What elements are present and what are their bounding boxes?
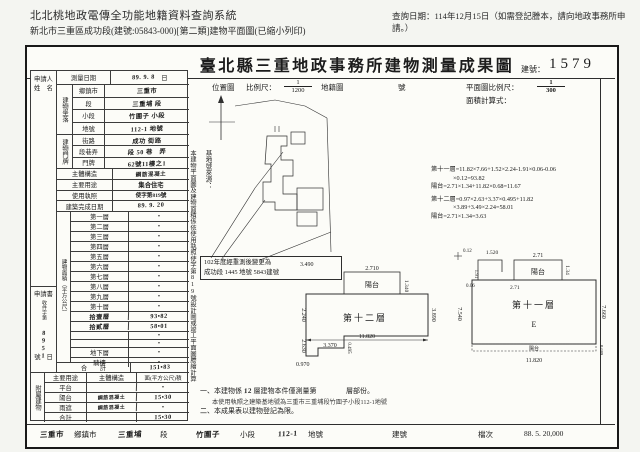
formula-line: 陽台=2.71×1.34+11.82×0.68=11.67 [431, 183, 623, 192]
dim-1520: 1.520 [486, 250, 499, 256]
dim-006: 0.06 [466, 284, 475, 289]
formula-line: ×0.12=93.82 [431, 175, 623, 184]
query-subtitle: 新北市三重區成功段(建號:05843-000)[第二類]建物平面圖(已縮小列印) [30, 24, 305, 37]
applicant-label-2: 姓 名 [34, 83, 53, 92]
floor-row: 第八層• [71, 282, 189, 292]
note-1-text: 層建物本件僅測量第 [254, 387, 317, 395]
strip-subsection-value: 竹圍子 [196, 429, 220, 441]
floor-row: 拾壹層93•82 [71, 312, 189, 322]
balcony-label: 陽台 [365, 280, 379, 289]
door-row: 門牌 62號11樓之1 [73, 158, 189, 168]
strip-building-label: 建號 [392, 429, 407, 440]
form-bottom-line [27, 424, 615, 425]
annex-area: • [137, 403, 189, 412]
dim-7540: 7.540 [456, 307, 462, 321]
dim-11820b: 11.820 [526, 358, 542, 364]
dim-2710: 2.710 [365, 266, 379, 272]
structure-label: 主體構造 [57, 169, 113, 179]
survey-date-handwritten: 89. 9. 8 [132, 74, 155, 82]
strip-section-label: 段 [160, 429, 168, 440]
area-formula-label: 面積計算式： [466, 95, 511, 106]
strip-subsection-label: 小段 [240, 429, 255, 440]
floor-label: 第十層 [71, 302, 129, 311]
annex-structure [87, 382, 137, 393]
floor-row: 第十層• [71, 302, 189, 312]
cadastral-no-label: 號 [398, 82, 406, 93]
strip-print-batch: 88. 5. 20,000 [524, 429, 563, 438]
location-row-value: 竹圍子 小段 [105, 109, 189, 123]
dim-3370: 3.370 [323, 343, 337, 349]
query-date: 查詢日期：114年12月15日（如需登記謄本，請向地政事務所申請。） [392, 10, 640, 34]
annex-structure [87, 413, 137, 422]
scale-numerator: 1 [284, 79, 312, 87]
query-system-page: 北北桃地政電傳全功能地籍資料查詢系統 查詢日期：114年12月15日（如需登記謄… [0, 0, 640, 452]
note-1-text: 一、本建物係 [200, 387, 242, 395]
note-1: 一、本建物係 12 層建物本件僅測量第 層部份。 [200, 386, 374, 396]
floor-value: • [129, 242, 189, 251]
survey-date-suffix: 日 [161, 73, 167, 82]
floor-row: • [71, 340, 189, 348]
floor-row: 第六層• [71, 262, 189, 272]
annex-area: 15•30 [137, 392, 189, 403]
receipt-no-label: 收件字第 [40, 300, 47, 330]
floor-value: • [129, 332, 189, 339]
formula-line: ×3.89+3.49×2.24=58.01 [431, 204, 623, 213]
document-title: 臺北縣三重地政事務所建物測量成果圖 [192, 52, 522, 76]
door-row-label: 段巷弄 [73, 146, 105, 156]
annex-block: 附屬建物 主要用途 主體構造 面(平方公尺)積 平台 • 陽台 鋼筋混凝土 15… [31, 373, 189, 422]
annex-label: 附屬建物 [31, 373, 45, 422]
plan-scale-numerator: 1 [537, 79, 565, 87]
floor-total-label: 合 計 [57, 363, 131, 372]
floor-label [71, 340, 129, 347]
main-use-row: 主要用途 集合住宅 [57, 180, 189, 191]
dim-3490: 3.490 [300, 262, 314, 268]
dim-2630: 2.630 [300, 339, 306, 353]
floor-label: 第五層 [71, 252, 129, 261]
dim-0689: 0.689 [599, 345, 604, 356]
location-row-label: 地號 [73, 123, 105, 135]
annex-structure: 鋼筋混凝土 [87, 392, 137, 403]
plan-scale-label: 平面圖比例尺： [466, 82, 519, 93]
floor-row: 第七層• [71, 272, 189, 282]
plan-scale-fraction: 1 300 [537, 79, 565, 94]
dim-271b: 2.71 [510, 285, 520, 291]
annex-row: 雨遮 鋼筋混凝土 • [45, 403, 189, 413]
area-formulas: 第十一層=11.82×7.66+1.52×2.24-1.91×0.06-0.06… [431, 166, 623, 221]
application-receipt-box: 申請書 收件字第 8951 號 日 [31, 287, 57, 373]
floor-label: 第一層 [71, 212, 129, 221]
floor-row: • [71, 332, 189, 340]
dim-11820: 11.820 [359, 334, 375, 340]
floor-row: 拾貳層58•01 [71, 322, 189, 332]
floor-total-value: 151•83 [131, 362, 189, 373]
license-stamp-note: 本使用執照之建築基地號為三重市三重埔段竹圍子小段112-1地號 [212, 397, 387, 406]
floor-label: 第六層 [71, 262, 129, 271]
balcony-strip-label: 陽台 [529, 345, 539, 352]
building-location-block: 建物坐落 鄉鎮市 三重市 段 三重埔 段 小段 竹圍子 小段 地號 112-1 … [57, 85, 189, 135]
floor-plan-11f: 0.12 7.540 1.520 1.91 0.06 2.71 1.34 陽台 … [450, 242, 618, 376]
annex-header-area: 面(平方公尺)積 [137, 373, 189, 382]
floor-value: • [129, 272, 189, 281]
license-value: 使字第819號 [113, 191, 189, 201]
floor-value: • [129, 212, 189, 221]
note-1-handwritten-floors: 12 [244, 387, 252, 395]
applicant-label-1: 申請人 [34, 74, 53, 83]
survey-date-row: 測量日期 89. 9. 8 日 [57, 71, 189, 85]
floor-row: 地下層• [71, 348, 189, 358]
annex-use: 陽台 [45, 393, 87, 402]
dim-7660: 7.660 [600, 305, 606, 319]
floor-label: 第九層 [71, 292, 129, 301]
floor-value: • [129, 282, 189, 291]
survey-date-value: 89. 9. 8 日 [111, 71, 189, 84]
strip-file-label: 檔次 [478, 429, 493, 440]
main-use-label: 主要用途 [57, 180, 113, 190]
receipt-no-handwritten: 8951 [40, 330, 48, 352]
license-label: 使用執照 [57, 191, 113, 201]
floor-label: 第四層 [71, 242, 129, 251]
location-row: 小段 竹圍子 小段 [73, 110, 189, 123]
strip-section-value: 三重埔 [118, 429, 142, 441]
floor-row: 第二層• [71, 222, 189, 232]
annex-row: 陽台 鋼筋混凝土 15•30 [45, 393, 189, 403]
floor-area-block: 建物面積（平方公尺） 第一層• 第二層• 第三層• 第四層• 第五層• 第六層•… [57, 212, 189, 363]
dim-0495: 0.495 [346, 342, 351, 354]
door-row-label: 門牌 [73, 158, 105, 168]
strip-township-value: 三重市 [40, 429, 64, 441]
location-row: 地號 112-1 地號 [73, 123, 189, 135]
floor-label: 地下層 [71, 348, 129, 357]
floor-row: 第一層• [71, 212, 189, 222]
floor-label: 第三層 [71, 232, 129, 241]
dim-191: 1.91 [473, 270, 478, 279]
plan-scale-denominator: 300 [537, 87, 565, 94]
application-label: 申請書 [34, 289, 53, 298]
strip-township-label: 鄉鎮市 [74, 429, 97, 440]
annex-area: 15•30 [137, 412, 189, 423]
survey-date-label: 測量日期 [57, 71, 111, 84]
building-number: 1579 [549, 56, 595, 73]
floor-label: 拾貳層 [71, 321, 129, 332]
completion-date-label: 建築完成日期 [57, 201, 113, 211]
formula-line: 第十一層=11.82×7.66+1.52×2.24-1.91×0.06-0.06 [431, 166, 623, 175]
dim-2240: 2.240 [300, 308, 306, 322]
receipt-day-suffix: 日 [47, 352, 53, 361]
location-row-label: 鄉鎮市 [73, 85, 105, 97]
completion-date-value: 89. 9. 20 [113, 200, 189, 212]
strip-parcel-label: 地號 [308, 429, 323, 440]
floor-value: • [129, 262, 189, 271]
completion-date-row: 建築完成日期 89. 9. 20 [57, 201, 189, 211]
floor-label: 第七層 [71, 272, 129, 281]
floor-value: • [129, 348, 189, 357]
applicant-name-cell: 申請人 姓 名 [31, 71, 57, 287]
floor-area-label: 建物面積（平方公尺） [57, 212, 71, 362]
dim-1340: 1.340 [403, 280, 409, 293]
annex-use: 合計 [45, 413, 87, 422]
floor-label [71, 332, 129, 339]
dim-0970: 0.970 [296, 362, 310, 368]
floor-row: 第五層• [71, 252, 189, 262]
dim-134: 1.34 [564, 265, 570, 275]
location-sketch-map [205, 92, 333, 260]
floor-label: 第二層 [71, 222, 129, 231]
floor-value: • [129, 222, 189, 231]
location-row-label: 小段 [73, 110, 105, 122]
structure-value: 鋼筋混凝土 [113, 168, 189, 180]
location-row-label: 段 [73, 98, 105, 110]
floor-value: • [129, 252, 189, 261]
main-use-value: 集合住宅 [113, 180, 189, 190]
annex-header-use: 主要用途 [45, 373, 87, 382]
location-row-value: 三重市 [105, 84, 189, 98]
floor-row: 第三層• [71, 232, 189, 242]
annex-total-row: 合計 15•30 [45, 413, 189, 422]
door-row: 段巷弄 段 50 巷 弄 [73, 146, 189, 157]
note-1-text: 層部份。 [346, 387, 374, 395]
location-row: 鄉鎮市 三重市 [73, 85, 189, 98]
system-title: 北北桃地政電傳全功能地籍資料查詢系統 [30, 7, 237, 23]
note-2: 二、本成果表以建物登記為限。 [200, 406, 298, 416]
door-row-label: 街路 [73, 135, 105, 145]
floor-row: 第九層• [71, 292, 189, 302]
floor-value: • [129, 292, 189, 301]
floor-label: 第八層 [71, 282, 129, 291]
floor-value: • [129, 340, 189, 347]
unit-letter: E [532, 320, 537, 329]
door-plate-label: 建物門牌 [57, 135, 73, 168]
annex-structure: 鋼筋混凝土 [87, 402, 137, 413]
balcony-label: 陽台 [531, 267, 545, 276]
annex-use: 雨遮 [45, 403, 87, 412]
floor-row: 第四層• [71, 242, 189, 252]
building-footprint [263, 132, 323, 226]
building-info-table: 申請人 姓 名 申請書 收件字第 8951 號 日 測量日期 89. 9. 8 … [30, 70, 188, 421]
floor-value: 58•01 [129, 321, 189, 332]
north-arrow-icon [209, 95, 235, 140]
strip-parcel-value: 112-1 [278, 429, 298, 439]
floor-plan-12f: 3.490 2.710 1.340 陽台 第十二層 11.820 3.370 0… [292, 258, 437, 376]
annex-use: 平台 [45, 383, 87, 392]
floor-11-label: 第十一層 [512, 299, 556, 310]
door-plate-block: 建物門牌 街路 成功 街路 段巷弄 段 50 巷 弄 門牌 62號11樓之1 [57, 135, 189, 169]
building-number-label: 建號： [521, 64, 545, 75]
structure-row: 主體構造 鋼筋混凝土 [57, 169, 189, 180]
annex-row: 平台 • [45, 383, 189, 393]
annex-header-structure: 主體構造 [87, 373, 137, 382]
dim-012: 0.12 [463, 249, 472, 254]
attributes-block: 主體構造 鋼筋混凝土 主要用途 集合住宅 使用執照 使字第819號 建築完成日期… [57, 169, 189, 212]
floor-12-label: 第十二層 [343, 312, 387, 323]
annex-area: • [137, 383, 189, 392]
annex-header-row: 主要用途 主體構造 面(平方公尺)積 [45, 373, 189, 383]
building-location-label: 建物坐落 [57, 85, 73, 134]
formula-line: 陽台=2.71×1.34=3.63 [431, 213, 623, 222]
dim-271a: 2.71 [533, 253, 544, 259]
dim-3890: 3.890 [430, 308, 436, 322]
floor-value: • [129, 232, 189, 241]
floor-total-row: 合 計 151•83 [57, 363, 189, 373]
floor-value: • [129, 302, 189, 311]
formula-line: 第十二層=0.97×2.63+3.37×0.495+11.82 [431, 196, 623, 205]
